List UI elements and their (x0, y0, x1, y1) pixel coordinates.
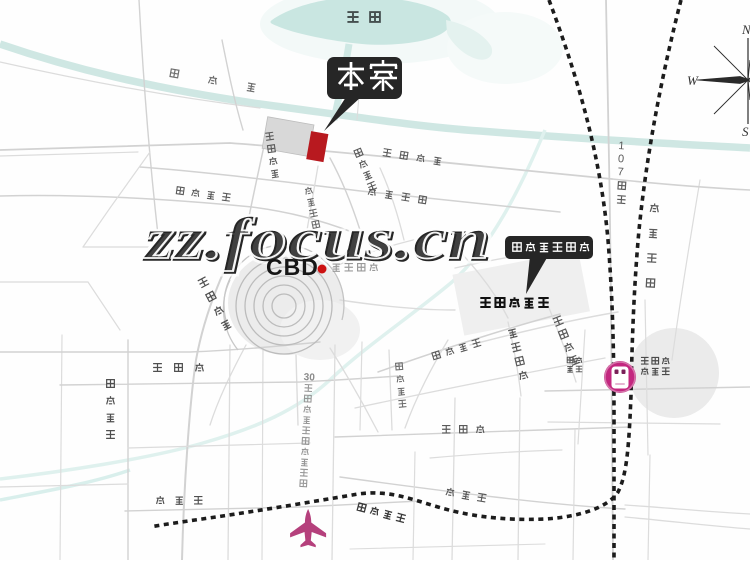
svg-text:1: 1 (618, 140, 625, 152)
svg-text:W: W (687, 73, 699, 88)
svg-text:N: N (741, 22, 750, 37)
svg-text:30: 30 (303, 372, 315, 384)
svg-text:0: 0 (618, 153, 625, 165)
svg-text:CBD: CBD (266, 254, 319, 280)
svg-text:7: 7 (617, 166, 624, 178)
svg-text:S: S (742, 124, 749, 139)
